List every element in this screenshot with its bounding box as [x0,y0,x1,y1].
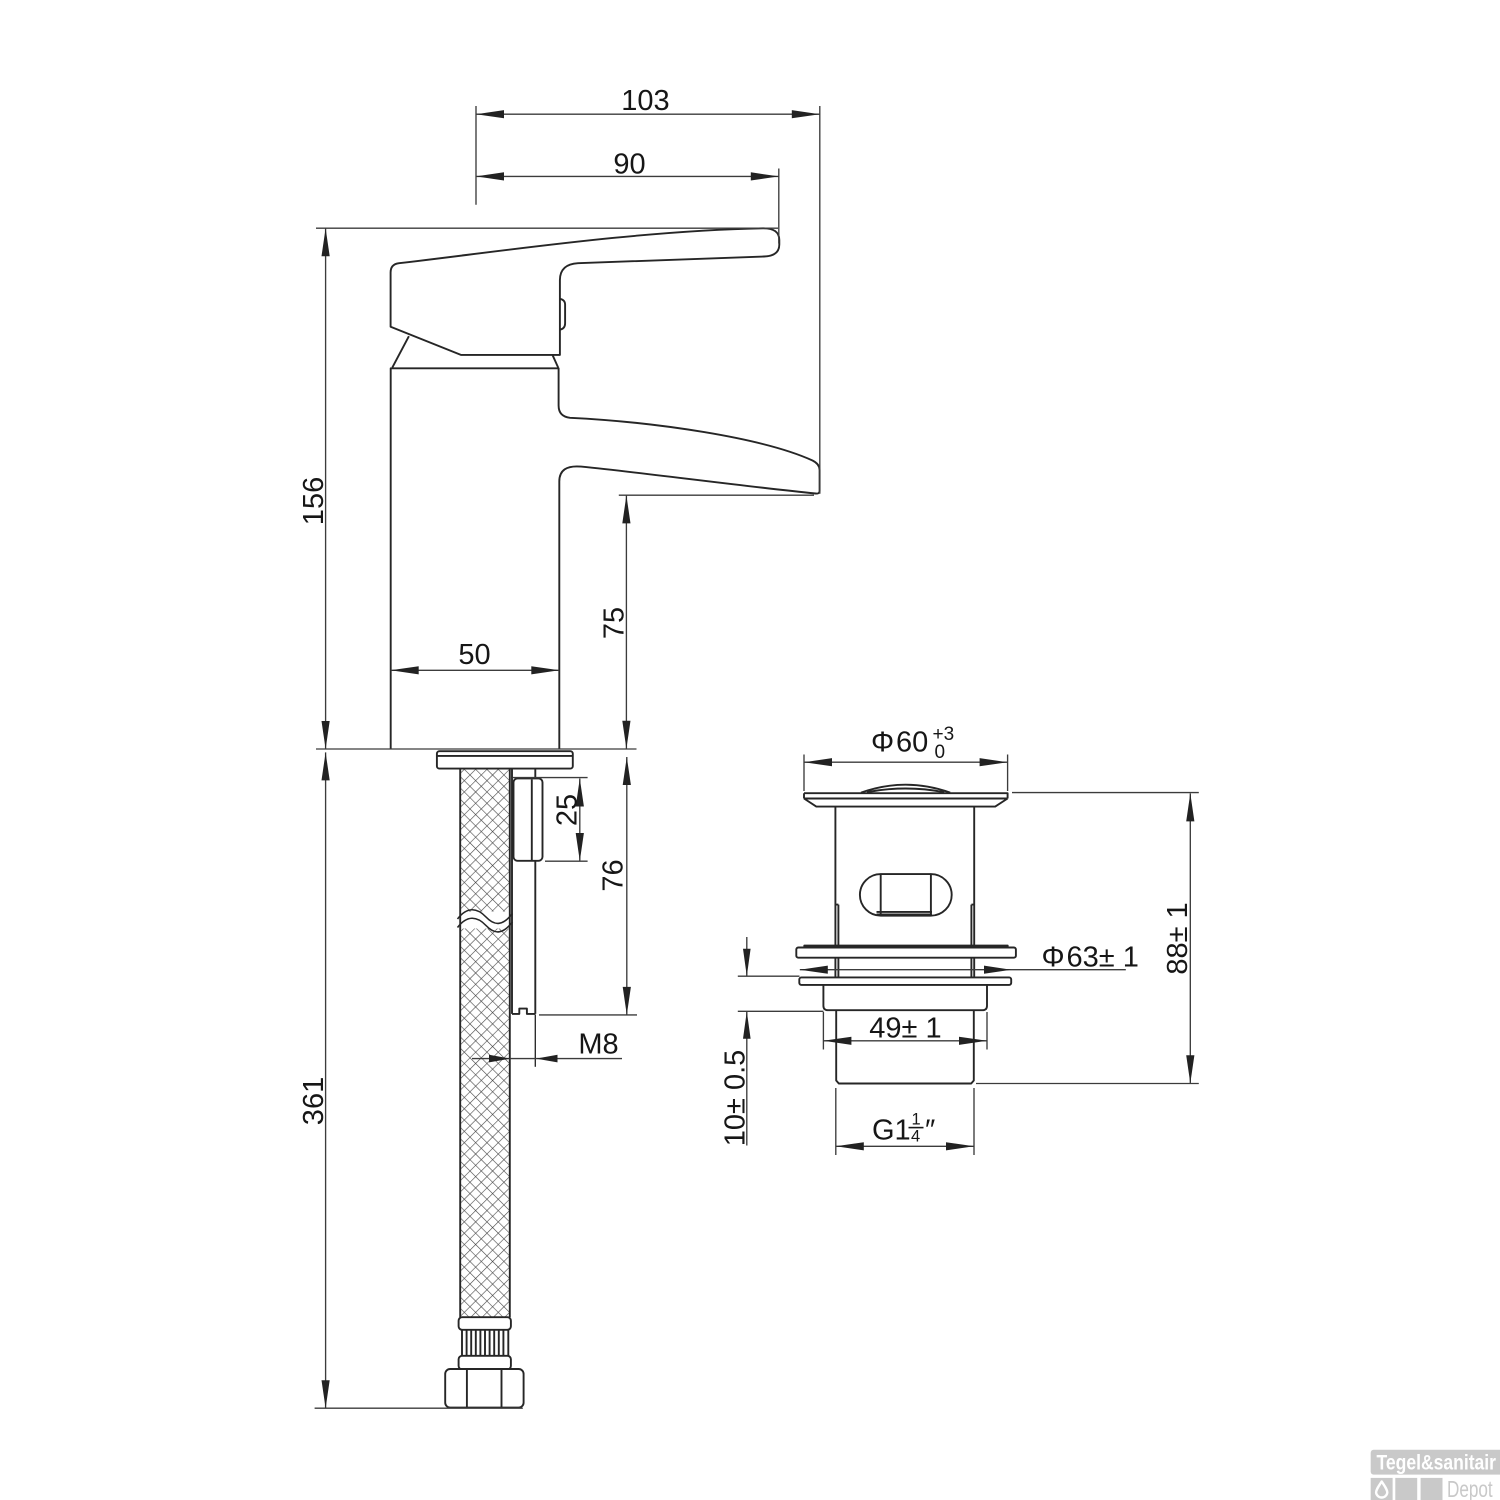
svg-text:4: 4 [911,1128,920,1146]
svg-text:103: 103 [621,85,669,117]
svg-text:1: 1 [912,1111,921,1129]
svg-text:156: 156 [298,477,330,525]
svg-text:90: 90 [613,148,645,180]
svg-text:Φ: Φ [1042,941,1065,973]
svg-text:361: 361 [298,1077,330,1125]
svg-text:49± 1: 49± 1 [869,1012,941,1044]
svg-text:10± 0.5: 10± 0.5 [720,1050,752,1147]
svg-text:0: 0 [935,742,946,763]
svg-text:63± 1: 63± 1 [1067,941,1139,973]
svg-text:Tegel&sanitair: Tegel&sanitair [1377,1450,1497,1474]
svg-text:25: 25 [552,794,584,826]
svg-text:Depot: Depot [1447,1476,1493,1500]
svg-text:″: ″ [925,1115,935,1147]
svg-text:60: 60 [896,727,928,759]
svg-text:G1: G1 [872,1115,911,1147]
svg-text:88± 1: 88± 1 [1162,902,1194,974]
svg-text:76: 76 [597,859,629,891]
svg-text:50: 50 [458,639,490,671]
svg-text:Φ: Φ [871,727,894,759]
svg-text:M8: M8 [578,1028,618,1060]
svg-text:75: 75 [598,607,630,639]
